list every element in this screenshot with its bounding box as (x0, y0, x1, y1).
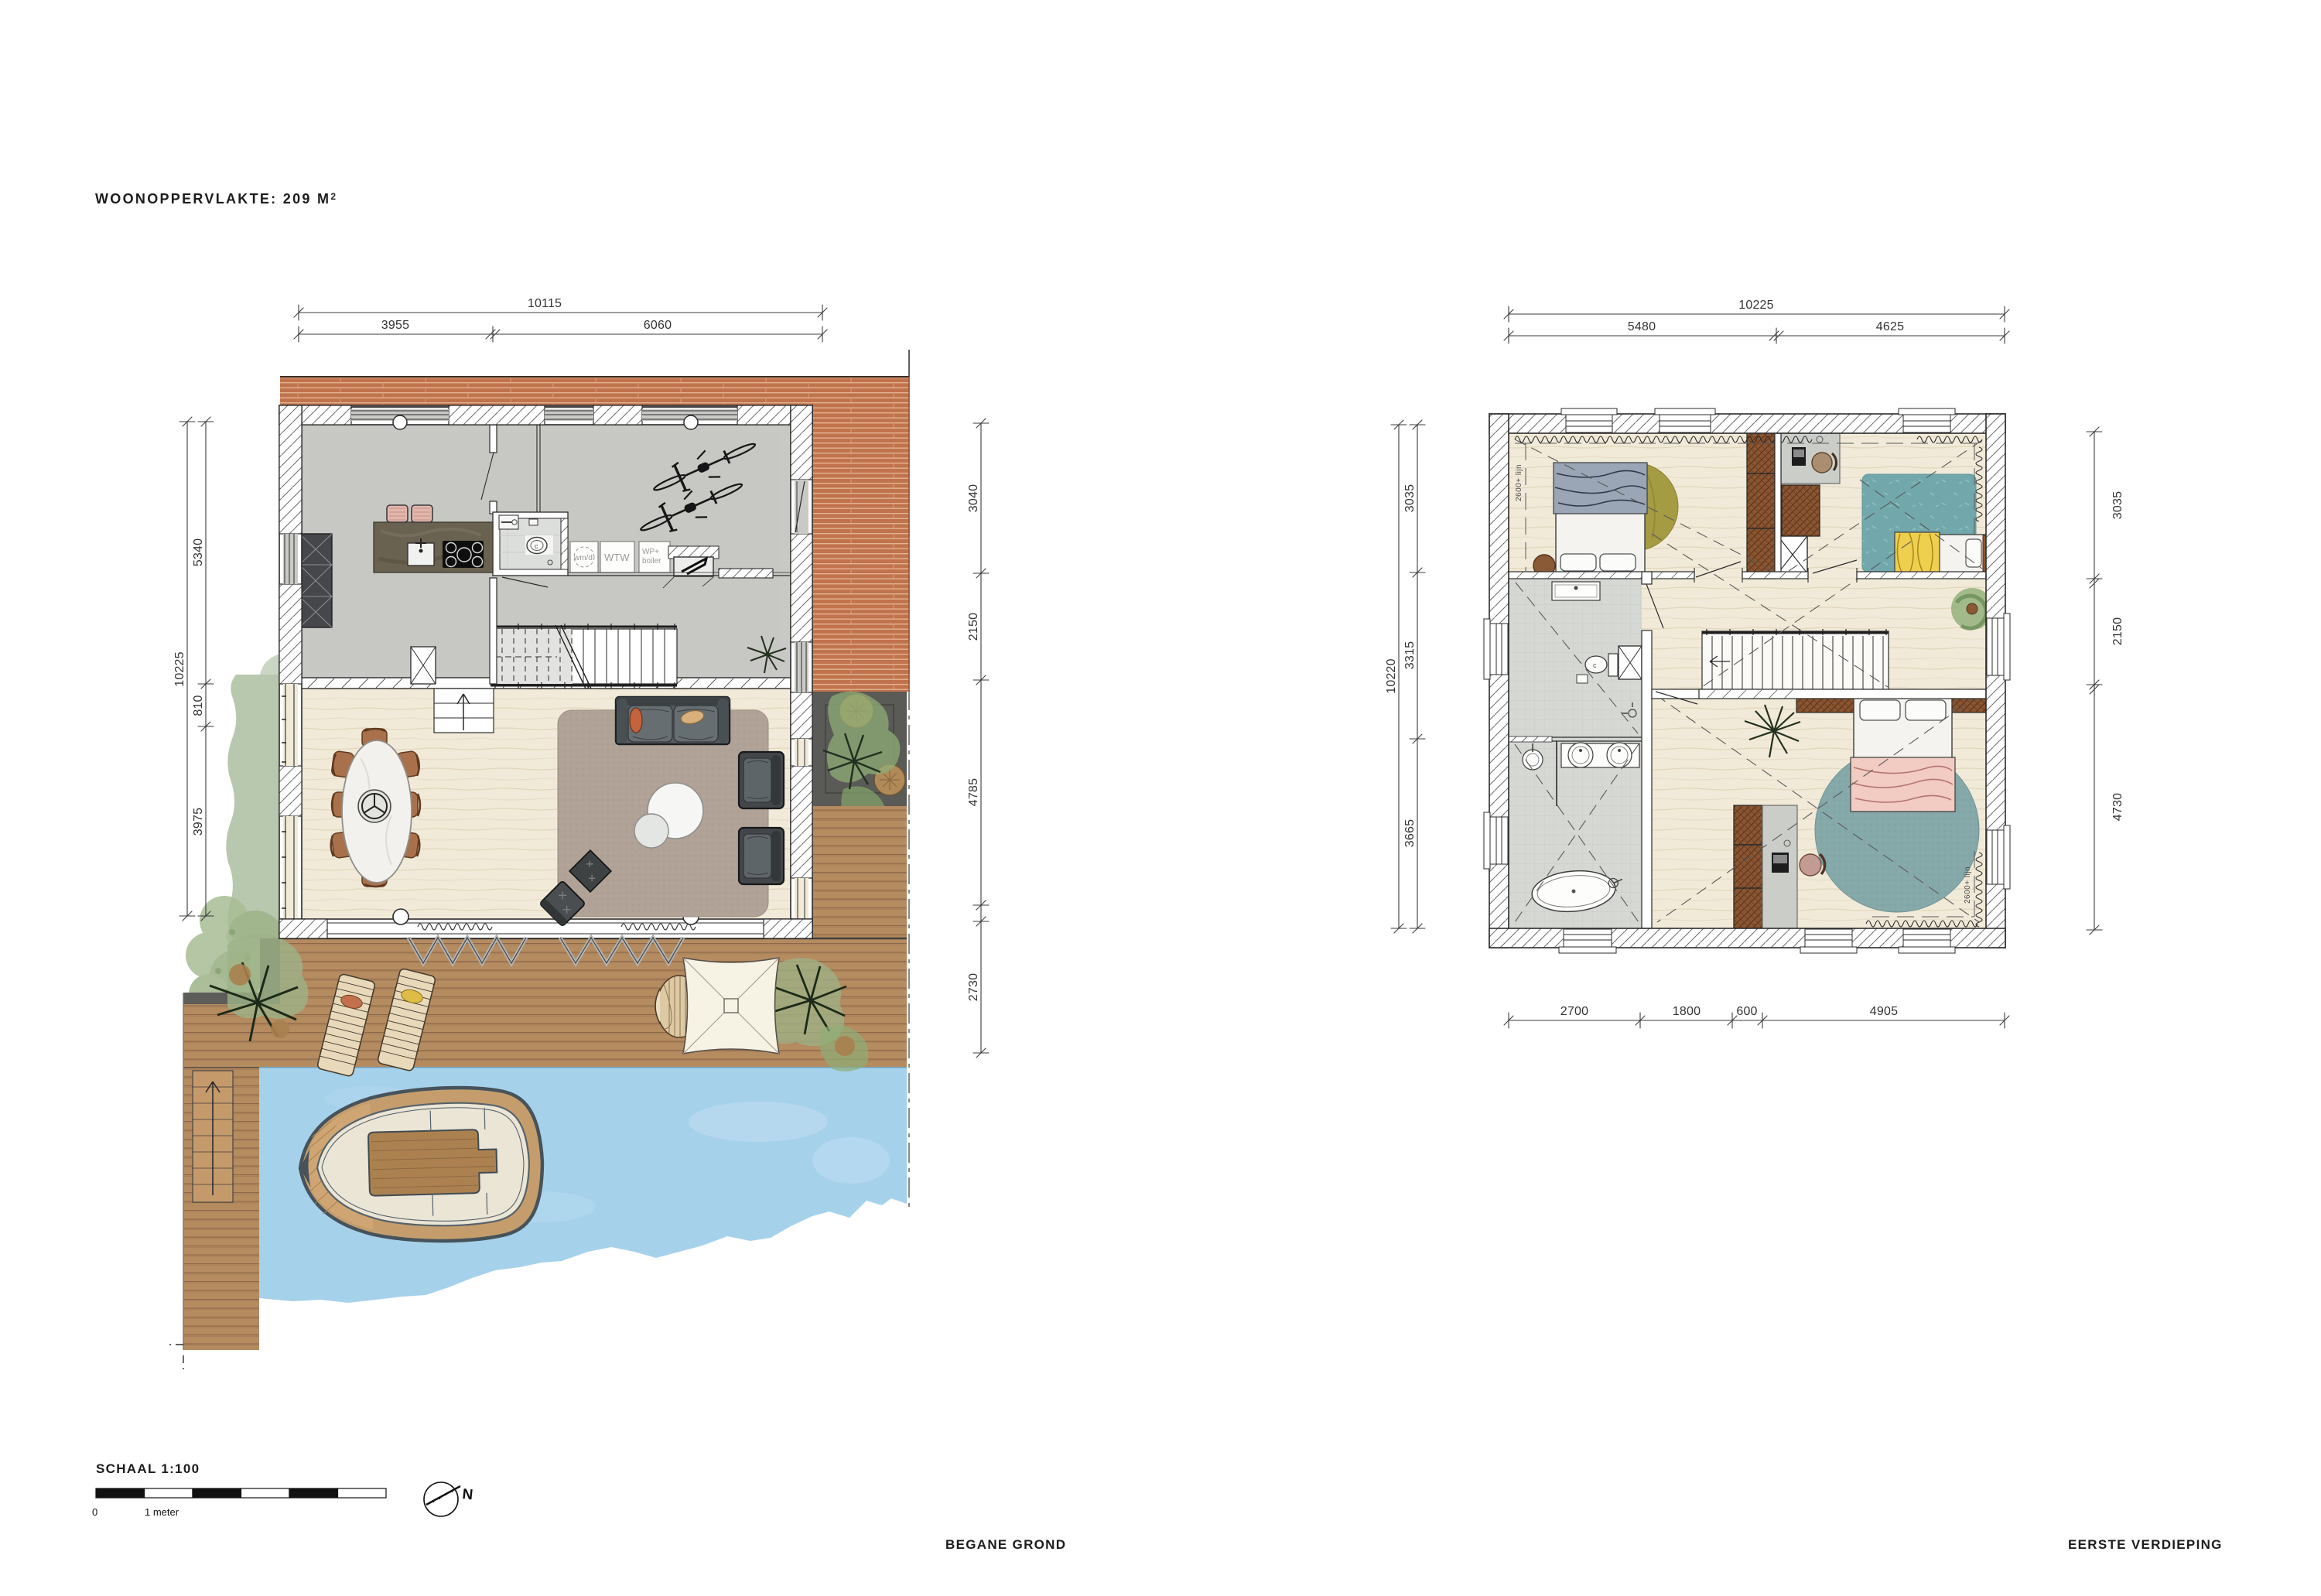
svg-text:10225: 10225 (1738, 299, 1774, 312)
svg-text:BEGANE GROND: BEGANE GROND (945, 1537, 1066, 1552)
svg-text:3035: 3035 (2111, 491, 2124, 519)
svg-text:1 meter: 1 meter (145, 1506, 179, 1518)
svg-text:2730: 2730 (967, 973, 980, 1001)
svg-text:3665: 3665 (1403, 819, 1417, 847)
svg-text:SCHAAL 1:100: SCHAAL 1:100 (96, 1461, 200, 1476)
svg-text:EERSTE VERDIEPING: EERSTE VERDIEPING (2068, 1537, 2223, 1552)
svg-text:5340: 5340 (192, 538, 205, 566)
svg-text:4785: 4785 (967, 778, 980, 806)
svg-text:WP+: WP+ (642, 548, 659, 556)
svg-text:c: c (535, 542, 538, 550)
svg-text:2600+ lijn: 2600+ lijn (1515, 464, 1523, 501)
svg-text:3035: 3035 (1403, 484, 1417, 512)
svg-text:5480: 5480 (1628, 320, 1656, 333)
svg-text:10225: 10225 (173, 651, 186, 687)
svg-text:wm/d: wm/d (573, 554, 593, 562)
svg-text:1800: 1800 (1673, 1005, 1701, 1018)
svg-text:3315: 3315 (1403, 641, 1417, 669)
svg-text:2150: 2150 (2111, 617, 2124, 645)
svg-text:3955: 3955 (381, 319, 409, 332)
svg-text:WTW: WTW (604, 552, 630, 563)
svg-text:c: c (1593, 661, 1597, 669)
svg-text:6060: 6060 (644, 319, 672, 332)
svg-text:3975: 3975 (192, 808, 205, 836)
svg-text:600: 600 (1736, 1005, 1757, 1018)
svg-text:boiler: boiler (642, 557, 661, 566)
svg-text:2600+ lijn: 2600+ lijn (1964, 866, 1972, 904)
svg-text:2700: 2700 (1560, 1005, 1588, 1018)
svg-text:N: N (461, 1486, 473, 1503)
svg-text:4905: 4905 (1870, 1005, 1898, 1018)
svg-text:3040: 3040 (967, 484, 980, 512)
svg-text:2150: 2150 (967, 613, 980, 641)
svg-text:0: 0 (92, 1506, 97, 1518)
svg-text:810: 810 (192, 695, 205, 716)
svg-text:WOONOPPERVLAKTE: 209 M2: WOONOPPERVLAKTE: 209 M2 (95, 191, 337, 207)
svg-text:4730: 4730 (2111, 793, 2124, 821)
svg-text:10115: 10115 (528, 297, 562, 310)
svg-text:10220: 10220 (1385, 658, 1398, 694)
svg-text:4625: 4625 (1876, 320, 1904, 333)
